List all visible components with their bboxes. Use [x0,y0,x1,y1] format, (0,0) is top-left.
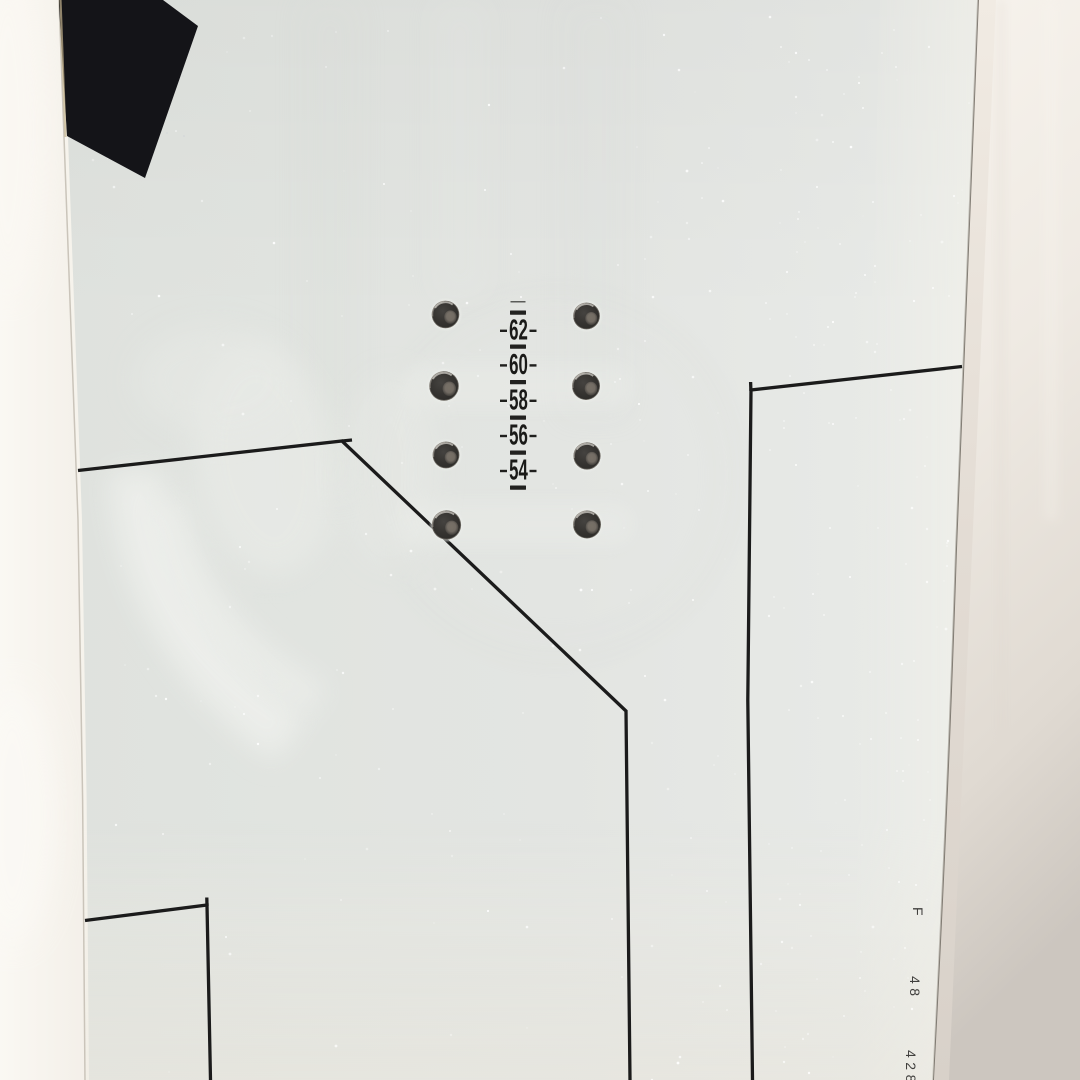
svg-text:62: 62 [509,315,528,347]
svg-text:48: 48 [907,976,923,1001]
svg-text:60: 60 [509,349,528,381]
svg-text:54: 54 [509,455,528,487]
svg-text:58: 58 [509,385,528,417]
svg-text:428: 428 [903,1050,919,1080]
svg-text:F: F [910,907,926,916]
svg-text:56: 56 [509,420,528,452]
